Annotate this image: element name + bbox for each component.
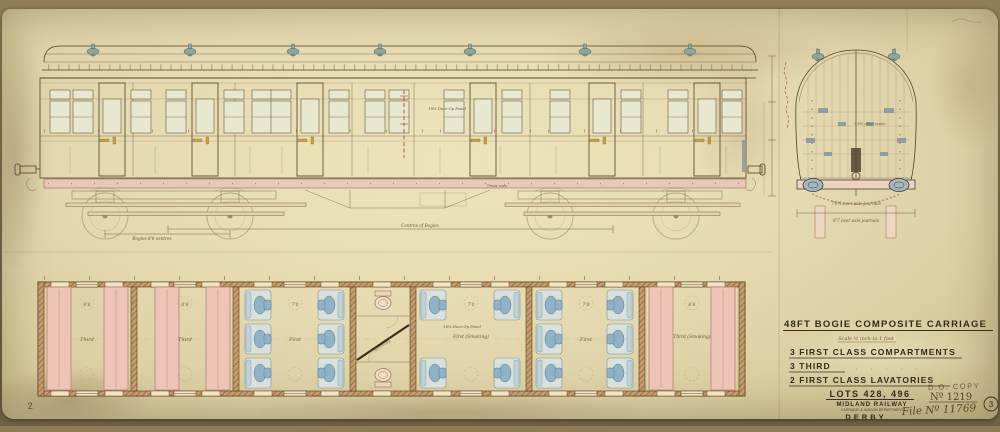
first-class-seat	[494, 290, 520, 320]
lots-label: LOTS 428, 496	[829, 389, 910, 399]
department-name: CARRIAGE & WAGON DEPARTMENT	[841, 408, 904, 412]
window-icon	[329, 90, 349, 133]
compartment-dim: 7'0	[468, 302, 475, 308]
door-icon	[297, 83, 323, 176]
spec-line: 3 THIRD	[790, 361, 831, 371]
window-icon	[252, 90, 272, 133]
door-opening	[76, 391, 98, 396]
over-journals-caption: 7'0½ over axle journals	[831, 201, 881, 206]
window-icon	[722, 90, 742, 133]
third-class-bench	[206, 287, 230, 390]
wheel-icon	[653, 193, 699, 239]
compartment-dim: 7'0	[583, 302, 590, 308]
window-icon	[621, 90, 641, 133]
compartment-dim: 7'0	[292, 302, 299, 308]
first-class-seat	[607, 324, 633, 354]
door-icon	[694, 83, 720, 176]
first-class-seat	[245, 324, 271, 354]
window-icon	[131, 90, 151, 133]
first-class-seat	[420, 290, 446, 320]
roof	[40, 46, 758, 78]
side-windows	[50, 90, 742, 133]
scale-note: Scale ½ inch to 1 foot	[838, 335, 894, 342]
third-class-bench	[649, 287, 673, 390]
compartment-label: First	[288, 337, 302, 343]
first-class-seat	[318, 324, 344, 354]
door-opening	[284, 282, 306, 287]
compartment-label: Third	[80, 337, 94, 343]
window-icon	[224, 90, 244, 133]
door-opening	[460, 282, 482, 287]
bogie-centres-dim-label: Bogies 8'0 centres	[131, 236, 171, 241]
door-panel-note: 18½ Door Op Panel	[428, 106, 466, 111]
door-opening	[575, 391, 597, 396]
first-class-seat	[318, 358, 344, 388]
first-class-seat	[494, 358, 520, 388]
door-icon	[589, 83, 615, 176]
spec-line: 2 FIRST CLASS LAVATORIES	[790, 375, 934, 385]
third-class-bench	[155, 287, 179, 390]
door-panel-note: 18½ Door Op Panel	[443, 324, 481, 329]
toilet-pan-icon	[375, 291, 391, 310]
first-class-seat	[245, 290, 271, 320]
window-icon	[502, 90, 522, 133]
compartment-label: First	[579, 337, 593, 343]
drawing-number: Nº 1219	[930, 392, 972, 403]
spec-line: 3 FIRST CLASS COMPARTMENTS	[790, 347, 956, 357]
door-opening	[174, 391, 196, 396]
wheel-icon	[527, 193, 573, 239]
approval-stamp-number: 3	[989, 400, 994, 409]
pencil-note-squiggle	[952, 19, 982, 22]
lavatory-label: Lavatory	[372, 338, 392, 352]
left-buffer	[15, 164, 40, 191]
door-opening	[575, 282, 597, 287]
scanned-drawing-sheet: { "page": { "page_number": "2" }, "palet…	[0, 0, 1000, 426]
first-class-seat	[607, 290, 633, 320]
roof-ventilator-icon	[812, 49, 824, 61]
first-class-seat	[245, 358, 271, 388]
red-ink-annotation	[784, 62, 789, 129]
third-class-bench	[104, 287, 128, 390]
first-class-seat	[318, 290, 344, 320]
over-stanchions-caption: 8'7 over axle journals	[833, 218, 879, 223]
lavatory-window-icon	[389, 90, 409, 133]
window-icon	[444, 90, 464, 133]
window-icon	[668, 90, 688, 133]
door-icon	[470, 83, 496, 176]
compartment-label: Third (Smoking)	[673, 333, 711, 340]
inside-width-note: 8'0½ clear inside	[854, 121, 885, 126]
door-opening	[76, 282, 98, 287]
roof-ventilator-icon	[888, 49, 900, 61]
footboards	[66, 203, 740, 216]
first-class-seat	[536, 324, 562, 354]
window-icon	[73, 90, 93, 133]
drawing-office-stamp: D.O. COPY	[928, 381, 981, 392]
window-icon	[166, 90, 186, 133]
drawing-title: 48FT BOGIE COMPOSITE CARRIAGE	[784, 319, 987, 330]
buffer-icon	[889, 179, 909, 192]
place-name: DERBY	[845, 413, 886, 422]
end-dimensions: 8'0½ clear inside 7'0½ over axle journal…	[764, 56, 915, 223]
first-class-seat	[536, 358, 562, 388]
door-opening	[681, 391, 703, 396]
toilet-pan-icon	[375, 369, 391, 388]
truss-rod-note: Truss rods	[487, 183, 507, 188]
compartment-dim: 6'6	[84, 302, 91, 308]
buffer-icon	[803, 179, 823, 192]
third-class-bench	[47, 287, 71, 390]
door-opening	[284, 391, 306, 396]
red-ink-annotation	[400, 90, 408, 158]
title-block: 48FT BOGIE COMPOSITE CARRIAGE Scale ½ in…	[783, 319, 998, 422]
window-icon	[271, 90, 291, 133]
page-number: 2	[27, 401, 33, 411]
first-class-seat	[536, 290, 562, 320]
window-icon	[550, 90, 570, 133]
centres-of-bogies-label: Centres of Bogies	[401, 223, 439, 228]
side-elevation: Bogies 8'0 centres Centres of Bogies 18½…	[15, 44, 765, 241]
end-view: 8'0½ clear inside 7'0½ over axle journal…	[764, 49, 916, 238]
carriage-drawing: Bogies 8'0 centres Centres of Bogies 18½…	[0, 0, 1000, 426]
third-class-bench	[711, 287, 735, 390]
compartment-dim: 6'6	[689, 302, 696, 308]
floor-plan: Third Third First First (Smoking) First …	[38, 278, 745, 396]
door-opening	[460, 391, 482, 396]
file-number: File Nº 11769	[901, 402, 977, 418]
door-icon	[192, 83, 218, 176]
door-opening	[681, 282, 703, 287]
window-icon	[50, 90, 70, 133]
compartment-label: First (Smoking)	[452, 333, 489, 340]
compartment-label: Third	[178, 337, 192, 343]
lavatory-window-icon	[365, 90, 385, 133]
lower-panel-lines	[70, 146, 726, 174]
door-icon	[99, 83, 125, 176]
compartment-dim: 6'6	[182, 302, 189, 308]
first-class-seat	[607, 358, 633, 388]
first-class-seat	[420, 358, 446, 388]
door-opening	[174, 282, 196, 287]
